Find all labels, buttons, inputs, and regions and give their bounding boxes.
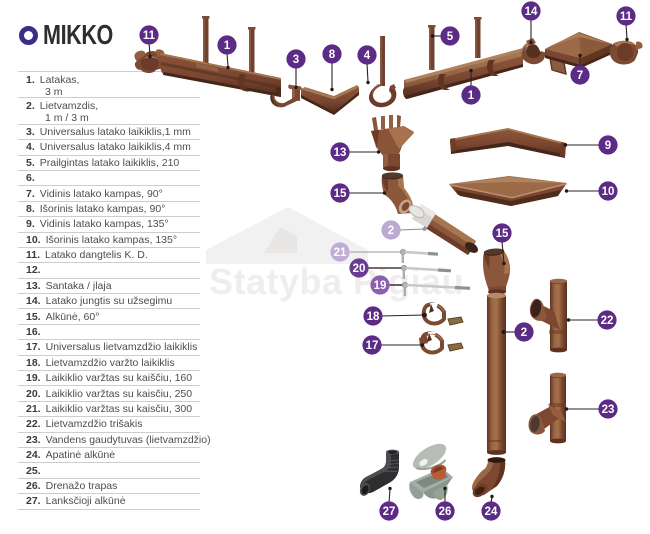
svg-text:1: 1 [468,90,475,102]
svg-text:15: 15 [496,228,509,240]
svg-text:21: 21 [334,247,347,259]
svg-text:2: 2 [521,327,527,339]
svg-text:7: 7 [577,70,583,82]
svg-text:8: 8 [329,49,336,61]
svg-text:Statyba Pigiau: Statyba Pigiau [209,261,464,302]
svg-text:3: 3 [293,54,299,66]
svg-text:24: 24 [485,506,498,518]
svg-text:11: 11 [143,30,156,42]
svg-text:14: 14 [525,6,538,18]
svg-text:17: 17 [366,340,379,352]
svg-text:23: 23 [602,404,615,416]
svg-text:18: 18 [367,311,380,323]
svg-text:19: 19 [374,280,387,292]
svg-text:11: 11 [620,11,633,23]
svg-text:13: 13 [334,147,347,159]
svg-text:1: 1 [224,40,231,52]
svg-text:10: 10 [602,186,615,198]
svg-text:22: 22 [601,315,614,327]
svg-text:27: 27 [383,506,396,518]
svg-text:20: 20 [353,263,366,275]
svg-text:15: 15 [334,188,347,200]
svg-text:2: 2 [388,225,394,237]
svg-text:26: 26 [439,506,452,518]
svg-text:9: 9 [605,140,611,152]
svg-text:5: 5 [447,31,454,43]
svg-text:4: 4 [364,50,371,62]
